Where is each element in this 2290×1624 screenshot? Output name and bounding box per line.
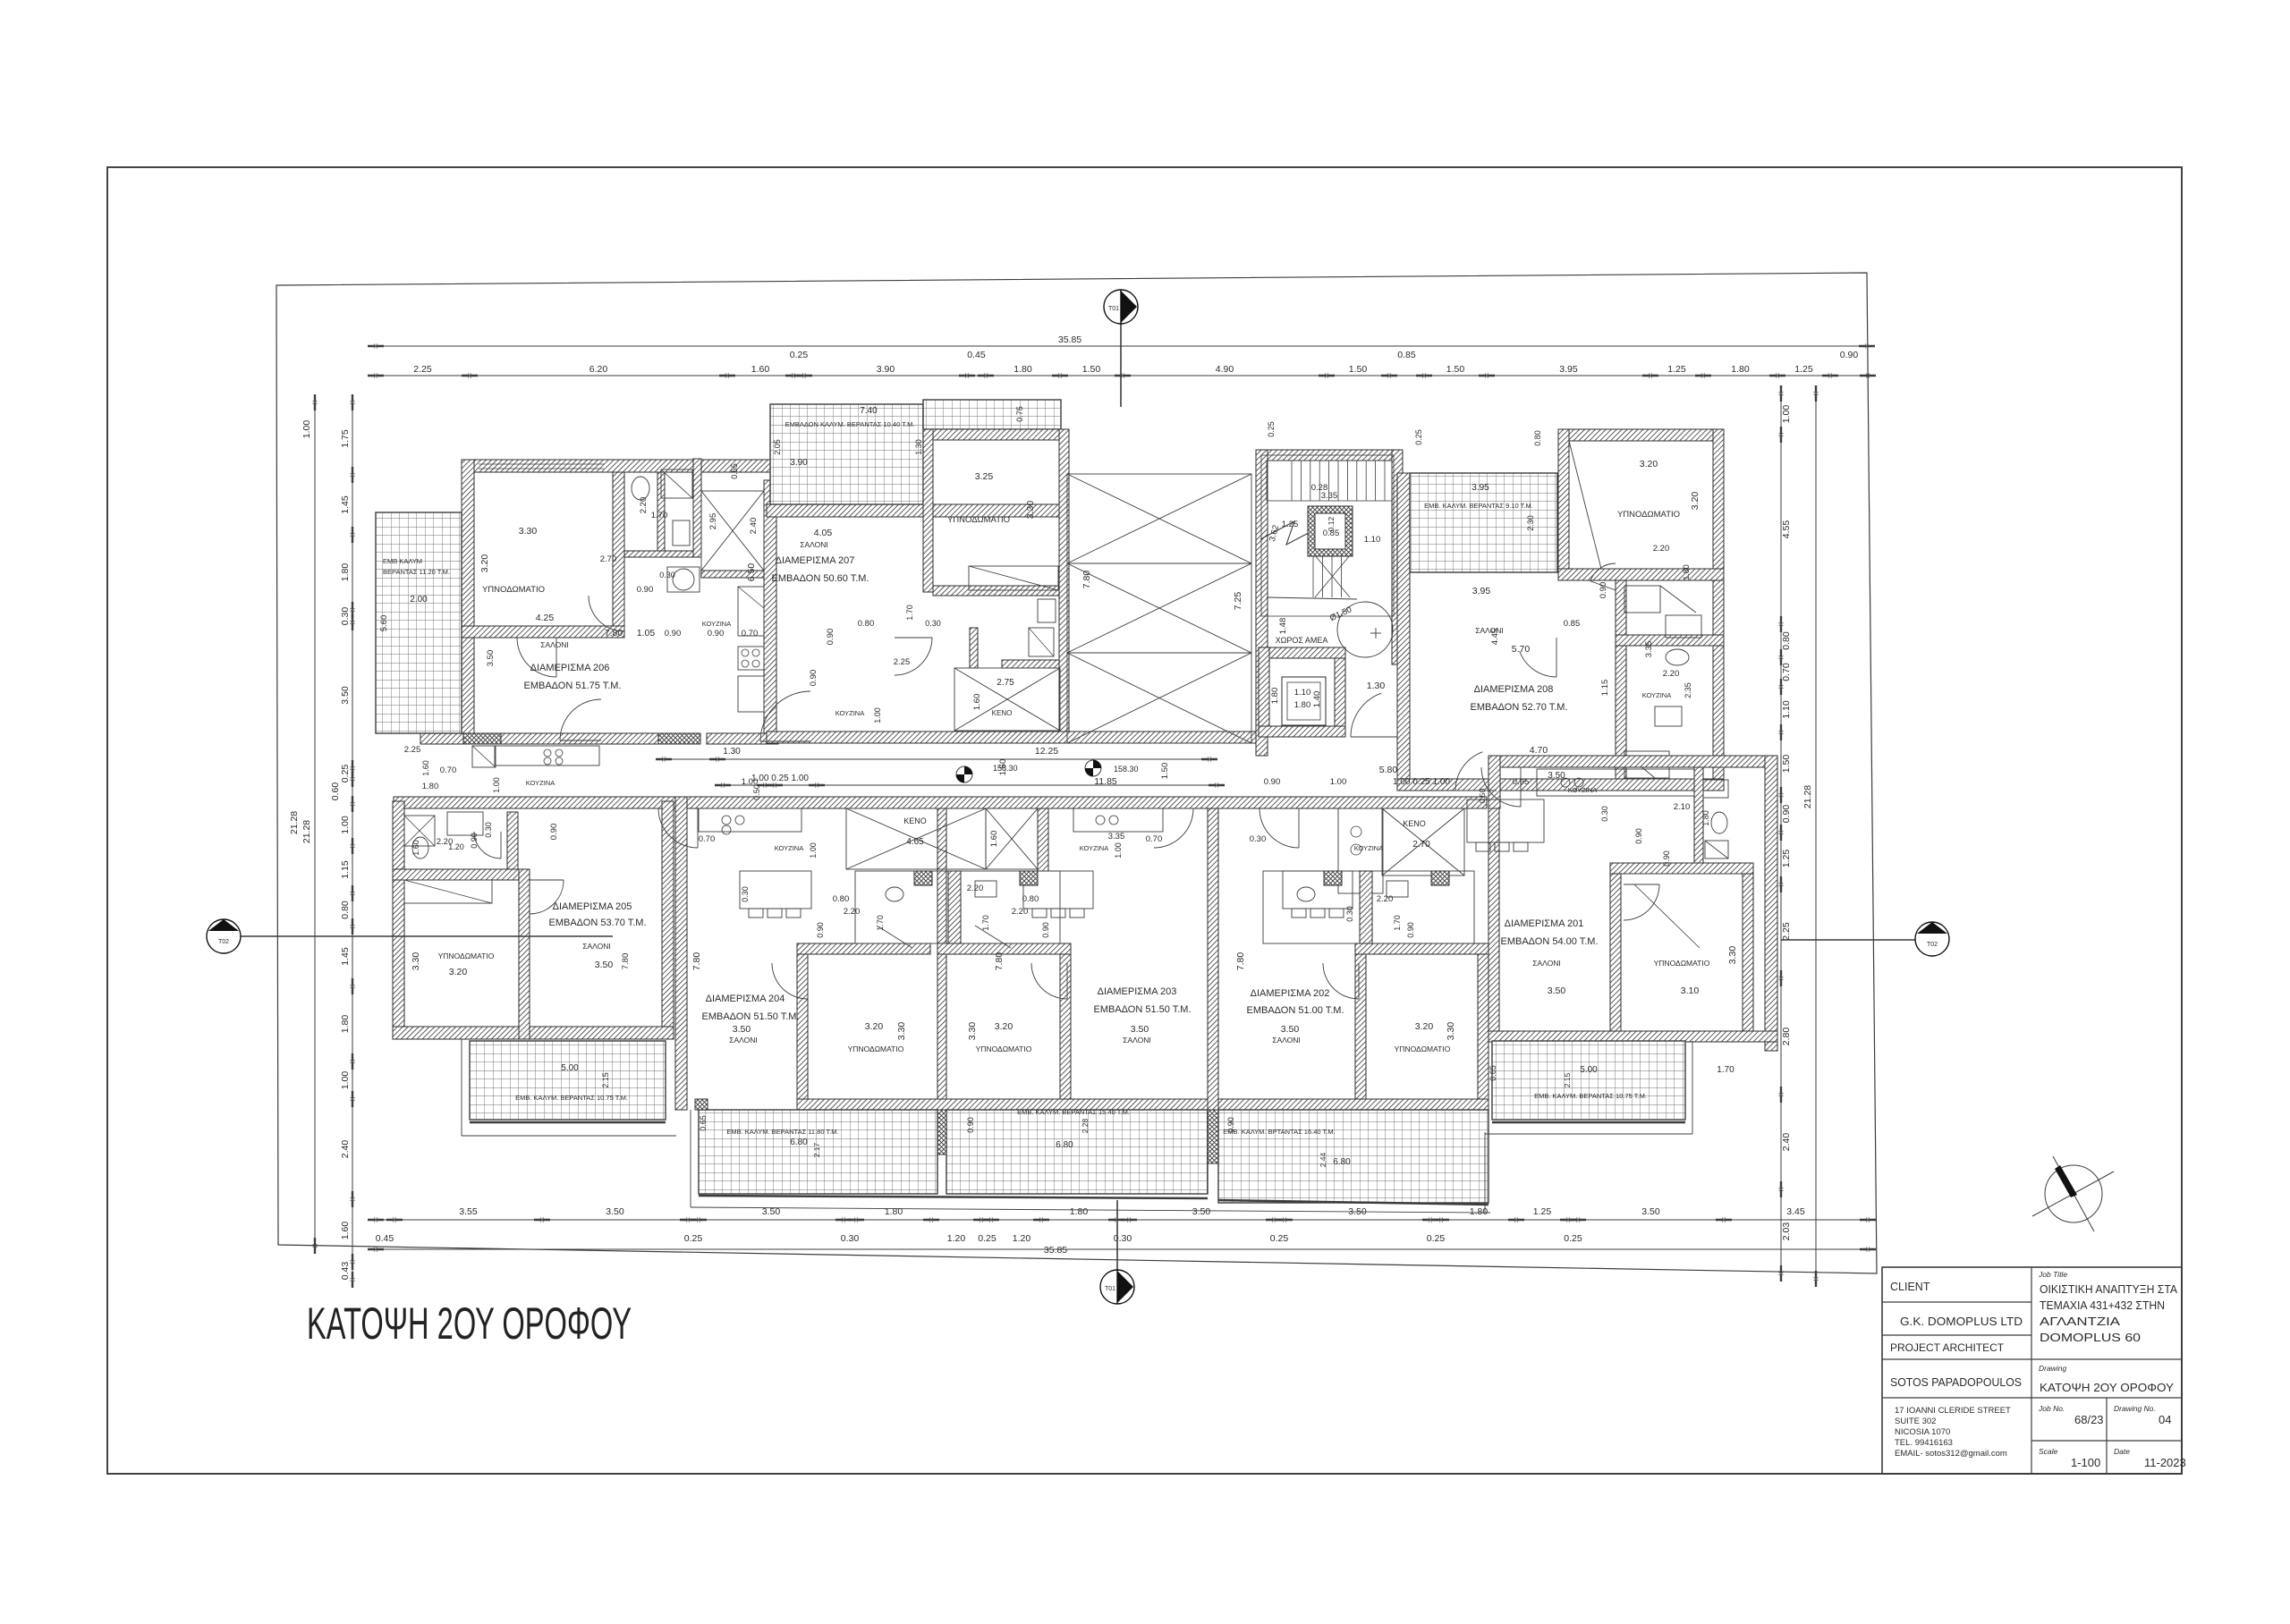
svg-text:1.80: 1.80	[1731, 364, 1750, 375]
svg-text:1.30: 1.30	[723, 747, 741, 757]
svg-text:ΕΜΒ. ΚΑΛΥΜ. ΒΡΤΑΝΤΑΣ 16.40 Τ.Μ: ΕΜΒ. ΚΑΛΥΜ. ΒΡΤΑΝΤΑΣ 16.40 Τ.Μ.	[1223, 1128, 1335, 1136]
svg-text:0.65: 0.65	[1488, 1065, 1497, 1081]
svg-text:ΑΓΛΑΝΤΖΙΑ: ΑΓΛΑΝΤΖΙΑ	[2040, 1315, 2120, 1328]
svg-text:2.20: 2.20	[639, 497, 649, 514]
svg-text:1.80: 1.80	[422, 782, 439, 791]
svg-text:4.90: 4.90	[1216, 364, 1234, 375]
svg-text:ΣΑΛΟΝΙ: ΣΑΛΟΝΙ	[540, 640, 569, 649]
svg-text:ΣΑΛΟΝΙ: ΣΑΛΟΝΙ	[800, 540, 828, 549]
svg-text:1.80: 1.80	[1270, 688, 1280, 705]
svg-text:7.80: 7.80	[621, 953, 631, 970]
svg-text:0.12: 0.12	[1327, 516, 1336, 531]
svg-text:2.25: 2.25	[1781, 922, 1792, 941]
svg-text:1.00: 1.00	[742, 777, 759, 787]
svg-text:0.25: 0.25	[1564, 1233, 1582, 1244]
svg-text:11.85: 11.85	[1094, 776, 1117, 787]
svg-text:1.50: 1.50	[1160, 763, 1170, 780]
svg-text:4.45: 4.45	[1490, 629, 1500, 646]
svg-text:3.50: 3.50	[1192, 1206, 1211, 1217]
svg-text:3.50: 3.50	[1131, 1024, 1149, 1035]
svg-text:Job No.: Job No.	[2038, 1404, 2065, 1413]
svg-text:ΔΙΑΜΕΡΙΣΜΑ 203: ΔΙΑΜΕΡΙΣΜΑ 203	[1098, 986, 1177, 997]
svg-text:3.50: 3.50	[1548, 985, 1566, 996]
svg-text:7.40: 7.40	[860, 406, 878, 416]
svg-text:7.80: 7.80	[994, 952, 1005, 971]
svg-text:ΔΙΑΜΕΡΙΣΜΑ 202: ΔΙΑΜΕΡΙΣΜΑ 202	[1251, 988, 1330, 999]
svg-text:1.20: 1.20	[1013, 1233, 1031, 1244]
svg-text:21.28: 21.28	[289, 811, 300, 834]
svg-text:1.45: 1.45	[340, 495, 351, 514]
svg-text:0.90: 0.90	[816, 922, 825, 938]
svg-text:1.48: 1.48	[1278, 618, 1288, 635]
svg-text:0.90: 0.90	[966, 1117, 975, 1133]
svg-text:ΕΜΒΑΔΟΝ 51.50 Τ.Μ.: ΕΜΒΑΔΟΝ 51.50 Τ.Μ.	[701, 1011, 799, 1022]
svg-text:6.80: 6.80	[1056, 1140, 1073, 1150]
svg-text:1.45: 1.45	[340, 947, 351, 966]
svg-text:1.60: 1.60	[411, 840, 420, 856]
svg-text:1.25: 1.25	[1781, 850, 1792, 868]
svg-text:0.25: 0.25	[978, 1233, 997, 1244]
svg-text:3.20: 3.20	[865, 1021, 884, 1032]
svg-text:2.20: 2.20	[1012, 907, 1029, 917]
svg-text:2.75: 2.75	[997, 678, 1014, 688]
svg-text:2.15: 2.15	[601, 1072, 610, 1088]
svg-text:3.35: 3.35	[1644, 641, 1654, 658]
svg-text:2.20: 2.20	[844, 907, 861, 917]
svg-text:1.00: 1.00	[873, 707, 882, 723]
svg-text:0.90: 0.90	[549, 824, 559, 841]
svg-text:0.90: 0.90	[1634, 828, 1643, 844]
svg-text:1.10: 1.10	[1294, 688, 1311, 698]
svg-text:0.90: 0.90	[809, 670, 818, 687]
svg-text:PROJECT ARCHITECT: PROJECT ARCHITECT	[1890, 1341, 2005, 1354]
svg-text:Drawing No.: Drawing No.	[2114, 1404, 2156, 1413]
svg-text:ΒΕΡΑΝΤΑΣ 11.20 Τ.Μ.: ΒΕΡΑΝΤΑΣ 11.20 Τ.Μ.	[383, 568, 450, 576]
svg-text:1.10: 1.10	[1781, 700, 1792, 719]
svg-text:0.90: 0.90	[1599, 582, 1608, 599]
svg-text:ΕΜΒΑΔΟΝ 51.75 Τ.Μ.: ΕΜΒΑΔΟΝ 51.75 Τ.Μ.	[523, 681, 621, 691]
svg-text:3.20: 3.20	[1640, 459, 1658, 469]
svg-text:0.50: 0.50	[1478, 788, 1487, 803]
svg-text:3.95: 3.95	[1472, 483, 1489, 493]
svg-text:2.20: 2.20	[1653, 544, 1670, 554]
svg-text:3.20: 3.20	[1415, 1021, 1434, 1032]
svg-text:0.90: 0.90	[1041, 922, 1050, 938]
svg-text:T02: T02	[218, 939, 229, 945]
svg-text:0.70: 0.70	[440, 765, 457, 775]
svg-text:0.70: 0.70	[742, 629, 759, 639]
svg-text:3.30: 3.30	[411, 952, 421, 971]
svg-text:ΕΜΒΑΔΟΝ 51.00 Τ.Μ.: ΕΜΒΑΔΟΝ 51.00 Τ.Μ.	[1246, 1005, 1344, 1016]
svg-text:2.00: 2.00	[410, 595, 428, 605]
svg-text:3.30: 3.30	[1446, 1022, 1456, 1041]
svg-text:ΥΠΝΟΔΩΜΑΤΙΟ: ΥΠΝΟΔΩΜΑΤΙΟ	[848, 1045, 904, 1053]
svg-text:KENO: KENO	[1403, 819, 1426, 828]
svg-text:3.30: 3.30	[519, 526, 538, 537]
svg-text:ΚΑΤΟΨΗ 2ΟΥ ΟΡΟΦΟΥ: ΚΑΤΟΨΗ 2ΟΥ ΟΡΟΦΟΥ	[307, 1298, 632, 1349]
svg-text:ΕΜΒ ΚΑΛΥΜ: ΕΜΒ ΚΑΛΥΜ	[383, 557, 422, 565]
svg-text:ΕΜΒΑΔΟΝ 50.60 Τ.Μ.: ΕΜΒΑΔΟΝ 50.60 Τ.Μ.	[771, 573, 869, 584]
svg-text:3.30: 3.30	[896, 1022, 907, 1041]
svg-text:5.00: 5.00	[561, 1063, 579, 1073]
svg-text:35.85: 35.85	[1058, 334, 1081, 345]
svg-text:0.90: 0.90	[1264, 777, 1281, 787]
svg-text:ΟΙΚΙΣΤΙΚΗ ΑΝΑΠΤΥΞΗ ΣΤΑ: ΟΙΚΙΣΤΙΚΗ ΑΝΑΠΤΥΞΗ ΣΤΑ	[2040, 1282, 2177, 1296]
svg-text:ΔΙΑΜΕΡΙΣΜΑ 208: ΔΙΑΜΕΡΙΣΜΑ 208	[1474, 684, 1554, 695]
svg-text:1.25: 1.25	[1282, 520, 1299, 529]
svg-text:4.55: 4.55	[1781, 520, 1792, 539]
svg-text:1.80: 1.80	[1701, 810, 1710, 826]
svg-text:ΚΟΥΖΙΝΑ: ΚΟΥΖΙΝΑ	[1642, 691, 1671, 699]
svg-text:1.05: 1.05	[637, 628, 656, 639]
svg-text:ΣΑΛΟΝΙ: ΣΑΛΟΝΙ	[1532, 959, 1561, 968]
svg-text:0.90: 0.90	[1226, 1117, 1235, 1133]
svg-text:0.90: 0.90	[1840, 350, 1859, 360]
svg-text:1.20: 1.20	[947, 1233, 966, 1244]
svg-text:0.65: 0.65	[699, 1115, 708, 1131]
svg-text:2.20: 2.20	[1663, 669, 1680, 679]
svg-text:1.15: 1.15	[1600, 680, 1610, 697]
svg-text:1.80: 1.80	[1014, 364, 1032, 375]
svg-text:3.90: 3.90	[790, 458, 808, 468]
svg-text:3.95: 3.95	[1559, 364, 1578, 375]
svg-text:ΔΙΑΜΕΡΙΣΜΑ 201: ΔΙΑΜΕΡΙΣΜΑ 201	[1505, 918, 1584, 929]
svg-text:0.30: 0.30	[340, 607, 351, 626]
svg-text:ΣΑΛΟΝΙ: ΣΑΛΟΝΙ	[582, 942, 611, 951]
svg-text:3.35: 3.35	[1108, 832, 1125, 842]
svg-text:ΚΟΥΖΙΝΑ: ΚΟΥΖΙΝΑ	[702, 620, 731, 628]
svg-text:0.90: 0.90	[470, 833, 479, 849]
svg-text:68/23: 68/23	[2074, 1413, 2104, 1426]
svg-text:2.95: 2.95	[708, 513, 718, 530]
svg-text:1.75: 1.75	[340, 429, 351, 448]
svg-text:1.00: 1.00	[340, 816, 351, 834]
svg-text:ΥΠΝΟΔΩΜΑΤΙΟ: ΥΠΝΟΔΩΜΑΤΙΟ	[947, 515, 1010, 525]
svg-text:5.70: 5.70	[1512, 644, 1531, 655]
svg-text:T02: T02	[1927, 942, 1938, 948]
svg-text:5.00: 5.00	[1580, 1065, 1598, 1075]
svg-text:0.75: 0.75	[1015, 406, 1024, 422]
svg-text:158.30: 158.30	[1114, 765, 1139, 774]
svg-text:CLIENT: CLIENT	[1890, 1281, 1930, 1293]
svg-text:0.30: 0.30	[484, 822, 493, 838]
svg-text:2.35: 2.35	[1684, 682, 1692, 698]
svg-text:ΚΟΥΖΙΝΑ: ΚΟΥΖΙΝΑ	[835, 709, 864, 717]
svg-text:7.80: 7.80	[605, 628, 623, 639]
svg-text:1.50: 1.50	[1349, 364, 1368, 375]
svg-text:1.50: 1.50	[1781, 755, 1792, 774]
svg-text:3.55: 3.55	[459, 1206, 478, 1217]
svg-text:7.25: 7.25	[1233, 592, 1243, 611]
svg-text:2.70: 2.70	[600, 554, 617, 564]
svg-text:ΥΠΝΟΔΩΜΑΤΙΟ: ΥΠΝΟΔΩΜΑΤΙΟ	[1395, 1045, 1451, 1053]
svg-text:NICOSIA 1070: NICOSIA 1070	[1895, 1427, 1950, 1437]
svg-text:1.70: 1.70	[981, 915, 990, 931]
svg-text:1.15: 1.15	[340, 860, 351, 879]
svg-text:1.20: 1.20	[448, 842, 464, 851]
svg-text:6.80: 6.80	[1333, 1157, 1351, 1167]
svg-text:04: 04	[2159, 1413, 2171, 1426]
svg-text:ΚΟΥΖΙΝΑ: ΚΟΥΖΙΝΑ	[1354, 844, 1383, 852]
svg-text:1.80: 1.80	[1294, 700, 1311, 710]
svg-text:1.40: 1.40	[1312, 691, 1322, 708]
svg-text:0.90: 0.90	[637, 585, 654, 595]
svg-text:1.60: 1.60	[421, 760, 430, 776]
svg-text:3.50: 3.50	[1641, 1206, 1660, 1217]
svg-text:3.50: 3.50	[606, 1206, 624, 1217]
svg-text:0.25: 0.25	[684, 1233, 703, 1244]
svg-text:1.00: 1.00	[1114, 842, 1123, 859]
svg-text:0.25: 0.25	[340, 765, 351, 783]
svg-text:2.25: 2.25	[404, 745, 421, 755]
svg-text:1.30: 1.30	[914, 439, 923, 455]
svg-text:1.50: 1.50	[1446, 364, 1465, 375]
svg-text:2.20: 2.20	[1377, 894, 1394, 904]
svg-text:0.80: 0.80	[1022, 894, 1039, 904]
svg-text:3.20: 3.20	[449, 967, 468, 977]
svg-text:KENO: KENO	[903, 816, 927, 825]
svg-text:2.30: 2.30	[1526, 515, 1535, 531]
svg-text:7.80: 7.80	[1081, 571, 1092, 589]
svg-text:ΕΜΒΑΔΟΝ 53.70 Τ.Μ.: ΕΜΒΑΔΟΝ 53.70 Τ.Μ.	[548, 918, 646, 928]
svg-text:ΔΙΑΜΕΡΙΣΜΑ 207: ΔΙΑΜΕΡΙΣΜΑ 207	[776, 555, 855, 566]
svg-text:1.25: 1.25	[1667, 364, 1686, 375]
svg-text:5.80: 5.80	[1379, 765, 1398, 775]
svg-text:1.50: 1.50	[1082, 364, 1101, 375]
svg-text:2.17: 2.17	[812, 1142, 821, 1157]
svg-text:ΕΜΒ. ΚΑΛΥΜ. ΒΕΡΑΝΤΑΣ 11.80 Τ.Μ: ΕΜΒ. ΚΑΛΥΜ. ΒΕΡΑΝΤΑΣ 11.80 Τ.Μ.	[726, 1128, 838, 1136]
svg-text:1.80: 1.80	[1682, 564, 1691, 580]
svg-text:2.44: 2.44	[1319, 1152, 1327, 1167]
svg-text:ΚΟΥΖΙΝΑ: ΚΟΥΖΙΝΑ	[1080, 844, 1108, 852]
svg-text:1.80: 1.80	[1070, 1206, 1089, 1217]
svg-text:ΥΠΝΟΔΩΜΑΤΙΟ: ΥΠΝΟΔΩΜΑΤΙΟ	[1617, 510, 1680, 520]
svg-text:Date: Date	[2114, 1447, 2130, 1456]
svg-text:3.10: 3.10	[1681, 985, 1700, 996]
svg-text:3.50: 3.50	[340, 686, 351, 705]
svg-text:0.45: 0.45	[376, 1233, 394, 1244]
svg-text:7.80: 7.80	[691, 952, 702, 971]
svg-text:SUITE 302: SUITE 302	[1895, 1417, 1936, 1426]
svg-text:SOTOS PAPADOPOULOS: SOTOS PAPADOPOULOS	[1890, 1375, 2022, 1389]
svg-text:2.70: 2.70	[1412, 840, 1430, 850]
svg-text:DOMOPLUS 60: DOMOPLUS 60	[2040, 1331, 2141, 1344]
svg-text:ΔΙΑΜΕΡΙΣΜΑ 205: ΔΙΑΜΕΡΙΣΜΑ 205	[553, 901, 632, 912]
svg-text:0.90: 0.90	[665, 629, 682, 639]
svg-text:ΚΟΥΖΙΝΑ: ΚΟΥΖΙΝΑ	[526, 779, 555, 787]
svg-text:ΣΑΛΟΝΙ: ΣΑΛΟΝΙ	[1272, 1036, 1301, 1045]
svg-text:ΤΕΜΑΧΙΑ 431+432 ΣΤΗΝ: ΤΕΜΑΧΙΑ 431+432 ΣΤΗΝ	[2040, 1298, 2165, 1312]
svg-text:ΥΠΝΟΔΩΜΑΤΙΟ: ΥΠΝΟΔΩΜΑΤΙΟ	[976, 1045, 1032, 1053]
svg-text:4.65: 4.65	[906, 837, 924, 847]
svg-text:0.95: 0.95	[1513, 777, 1530, 787]
svg-text:ΕΜΒ. ΚΑΛΥΜ. ΒΕΡΑΝΤΑΣ 10.75 Τ.Μ: ΕΜΒ. ΚΑΛΥΜ. ΒΕΡΑΝΤΑΣ 10.75 Τ.Μ.	[1534, 1092, 1647, 1100]
svg-text:3.30: 3.30	[967, 1022, 978, 1041]
svg-text:T01: T01	[1108, 306, 1119, 312]
svg-text:3.50: 3.50	[486, 650, 496, 667]
svg-text:ΣΑΛΟΝΙ: ΣΑΛΟΝΙ	[1123, 1036, 1151, 1045]
svg-text:0.80: 0.80	[1533, 430, 1542, 446]
svg-text:3.45: 3.45	[1786, 1206, 1805, 1217]
svg-text:ΥΠΝΟΔΩΜΑΤΙΟ: ΥΠΝΟΔΩΜΑΤΙΟ	[1654, 959, 1710, 968]
svg-text:ΕΜΒΑΔΟΝ 52.70 Τ.Μ.: ΕΜΒΑΔΟΝ 52.70 Τ.Μ.	[1470, 702, 1567, 713]
svg-text:2.28: 2.28	[1081, 1118, 1090, 1133]
svg-text:0.70: 0.70	[1146, 834, 1163, 844]
svg-text:1.70: 1.70	[876, 915, 885, 931]
svg-text:3.95: 3.95	[1472, 586, 1491, 596]
svg-text:6.50: 6.50	[746, 563, 757, 582]
svg-text:0.60: 0.60	[330, 782, 341, 801]
svg-text:ΕΜΒΑΔΟΝ 54.00 Τ.Μ.: ΕΜΒΑΔΟΝ 54.00 Τ.Μ.	[1500, 936, 1598, 947]
svg-text:ΔΙΑΜΕΡΙΣΜΑ 204: ΔΙΑΜΕΡΙΣΜΑ 204	[706, 994, 785, 1004]
svg-text:ΥΠΝΟΔΩΜΑΤΙΟ: ΥΠΝΟΔΩΜΑΤΙΟ	[438, 952, 495, 960]
svg-text:0.30: 0.30	[1114, 1233, 1132, 1244]
svg-text:3.20: 3.20	[1690, 492, 1701, 511]
svg-text:3.20: 3.20	[479, 554, 490, 573]
svg-text:0.25: 0.25	[1427, 1233, 1446, 1244]
svg-text:0.30: 0.30	[659, 571, 675, 579]
svg-text:3.25: 3.25	[975, 471, 994, 482]
svg-text:0.80: 0.80	[833, 894, 850, 904]
svg-text:ΕΜΒ. ΚΑΛΥΜ. ΒΕΡΑΝΤΑΣ 9.10 Τ.Μ: ΕΜΒ. ΚΑΛΥΜ. ΒΕΡΑΝΤΑΣ 9.10 Τ.Μ.	[1424, 502, 1533, 510]
svg-text:0.90: 0.90	[826, 629, 835, 646]
svg-text:2.40: 2.40	[749, 518, 759, 535]
svg-text:35.85: 35.85	[1044, 1245, 1067, 1256]
svg-text:0.30: 0.30	[925, 619, 941, 628]
svg-text:EMAIL- sotos312@gmail.com: EMAIL- sotos312@gmail.com	[1895, 1449, 2007, 1459]
svg-text:0.85: 0.85	[1397, 350, 1416, 360]
svg-text:0.70: 0.70	[699, 834, 716, 844]
svg-text:1.00: 1.00	[1330, 777, 1347, 787]
svg-text:4.70: 4.70	[1530, 745, 1548, 756]
svg-text:1.80: 1.80	[885, 1206, 903, 1217]
svg-text:2.40: 2.40	[340, 1140, 351, 1159]
svg-text:1.00: 1.00	[809, 842, 818, 859]
svg-text:0.25: 0.25	[790, 350, 809, 360]
svg-text:0.70: 0.70	[1781, 663, 1792, 681]
svg-text:1.80: 1.80	[340, 563, 351, 582]
svg-text:ΥΠΝΟΔΩΜΑΤΙΟ: ΥΠΝΟΔΩΜΑΤΙΟ	[482, 585, 545, 595]
svg-text:0.43: 0.43	[340, 1262, 351, 1281]
svg-text:1.70: 1.70	[1393, 915, 1402, 931]
svg-text:17 IOANNI CLERIDE STREET: 17 IOANNI CLERIDE STREET	[1895, 1406, 2011, 1416]
svg-text:0.30: 0.30	[741, 886, 750, 902]
svg-text:3.30: 3.30	[1025, 501, 1036, 520]
svg-text:1.80: 1.80	[340, 1015, 351, 1034]
svg-text:0.25: 0.25	[1267, 421, 1276, 437]
svg-text:ΚΟΥΖΙΝΑ: ΚΟΥΖΙΝΑ	[775, 844, 803, 852]
svg-text:2.15: 2.15	[1563, 1072, 1572, 1087]
svg-text:1.60: 1.60	[340, 1222, 351, 1240]
svg-text:1.70: 1.70	[905, 605, 914, 621]
svg-text:0.25: 0.25	[1414, 429, 1423, 445]
svg-text:1.10: 1.10	[1364, 535, 1381, 545]
svg-text:2.03: 2.03	[1781, 1222, 1792, 1241]
svg-text:2.25: 2.25	[894, 657, 911, 667]
svg-text:1.00: 1.00	[492, 777, 501, 793]
svg-text:3.50: 3.50	[733, 1024, 751, 1035]
svg-text:1.00: 1.00	[340, 1071, 351, 1090]
svg-text:ΕΜΒ. ΚΑΛΥΜ. ΒΕΡΑΝΤΑΣ 10.75 Τ.Μ: ΕΜΒ. ΚΑΛΥΜ. ΒΕΡΑΝΤΑΣ 10.75 Τ.Μ.	[515, 1094, 628, 1102]
svg-text:0.30: 0.30	[1250, 834, 1267, 844]
svg-text:0.30: 0.30	[1345, 906, 1354, 922]
svg-text:Scale: Scale	[2039, 1447, 2058, 1456]
svg-text:ΕΜΒ. ΚΑΛΥΜ. ΒΕΡΑΝΤΑΣ 15.40 Τ.Μ: ΕΜΒ. ΚΑΛΥΜ. ΒΕΡΑΝΤΑΣ 15.40 Τ.Μ.	[1017, 1108, 1130, 1116]
svg-text:0.85: 0.85	[1564, 619, 1581, 629]
svg-text:11-2023: 11-2023	[2144, 1456, 2186, 1469]
svg-text:0.90: 0.90	[1781, 805, 1792, 824]
svg-text:ΣΑΛΟΝΙ: ΣΑΛΟΝΙ	[729, 1036, 758, 1045]
svg-text:1.60: 1.60	[972, 694, 982, 711]
svg-text:3.90: 3.90	[877, 364, 895, 375]
svg-text:2.40: 2.40	[1781, 1133, 1792, 1152]
svg-text:0.80: 0.80	[1781, 631, 1792, 650]
svg-text:7.80: 7.80	[1235, 952, 1246, 971]
svg-text:0.55: 0.55	[730, 463, 739, 479]
svg-text:0.80: 0.80	[340, 901, 351, 919]
svg-text:1.00: 1.00	[301, 420, 312, 439]
svg-text:0.30: 0.30	[841, 1233, 860, 1244]
svg-text:Job Title: Job Title	[2038, 1270, 2067, 1279]
svg-text:1-100: 1-100	[2071, 1456, 2100, 1469]
svg-text:6.80: 6.80	[790, 1138, 808, 1147]
svg-text:ΕΜΒΑΔΟΝ ΚΑΛΥΜ. ΒΕΡΑΝΤΑΣ 10.40: ΕΜΒΑΔΟΝ ΚΑΛΥΜ. ΒΕΡΑΝΤΑΣ 10.40 Τ.Μ.	[785, 420, 915, 428]
svg-text:3.20: 3.20	[995, 1021, 1014, 1032]
svg-text:1.60: 1.60	[751, 364, 770, 375]
svg-text:2.20: 2.20	[967, 884, 984, 893]
svg-text:1.70: 1.70	[1717, 1065, 1734, 1075]
svg-text:21.28: 21.28	[301, 820, 312, 843]
svg-text:1.70: 1.70	[651, 511, 668, 520]
svg-text:1.25: 1.25	[1533, 1206, 1552, 1217]
svg-text:1.00: 1.00	[1781, 405, 1792, 424]
svg-text:2.10: 2.10	[1674, 802, 1691, 812]
svg-text:5.60: 5.60	[379, 615, 389, 632]
svg-text:2.80: 2.80	[1781, 1028, 1792, 1046]
svg-text:1.30: 1.30	[1367, 681, 1386, 691]
svg-text:6.20: 6.20	[589, 364, 608, 375]
svg-text:0.28: 0.28	[1311, 483, 1328, 493]
svg-text:3.30: 3.30	[1727, 946, 1738, 965]
svg-text:12.25: 12.25	[1035, 746, 1058, 757]
svg-text:G.K. DOMOPLUS LTD: G.K. DOMOPLUS LTD	[1900, 1315, 2023, 1328]
svg-text:0.90: 0.90	[1662, 850, 1671, 867]
svg-text:3.50: 3.50	[595, 960, 614, 970]
svg-text:0.30: 0.30	[1600, 806, 1609, 822]
svg-text:0.90: 0.90	[1406, 922, 1415, 938]
svg-text:0.80: 0.80	[858, 619, 875, 629]
svg-text:2.25: 2.25	[413, 364, 432, 375]
svg-text:ΚΑΤΟΨΗ 2ΟΥ ΟΡΟΦΟΥ: ΚΑΤΟΨΗ 2ΟΥ ΟΡΟΦΟΥ	[2040, 1381, 2174, 1394]
svg-text:1.25: 1.25	[1794, 364, 1813, 375]
svg-text:4.25: 4.25	[536, 613, 555, 623]
svg-text:TEL. 99416163: TEL. 99416163	[1895, 1438, 1953, 1448]
svg-text:2.05: 2.05	[773, 439, 782, 455]
svg-text:T01: T01	[1105, 1286, 1115, 1292]
svg-text:KENO: KENO	[992, 709, 1013, 717]
svg-text:1.60: 1.60	[989, 831, 999, 848]
svg-text:1.00 0.25 1.00: 1.00 0.25 1.00	[1393, 777, 1450, 787]
svg-text:3.50: 3.50	[1281, 1024, 1300, 1035]
svg-text:3.50: 3.50	[1548, 771, 1565, 781]
svg-text:ΚΟΥΖΙΝΑ: ΚΟΥΖΙΝΑ	[1568, 786, 1597, 794]
svg-text:4.05: 4.05	[814, 528, 833, 538]
svg-text:0.45: 0.45	[967, 350, 986, 360]
svg-text:0.25: 0.25	[1270, 1233, 1289, 1244]
svg-text:21.28: 21.28	[1802, 785, 1813, 808]
svg-text:ΔΙΑΜΕΡΙΣΜΑ 206: ΔΙΑΜΕΡΙΣΜΑ 206	[530, 663, 610, 673]
svg-text:1.00 0.25 1.00: 1.00 0.25 1.00	[751, 774, 809, 783]
